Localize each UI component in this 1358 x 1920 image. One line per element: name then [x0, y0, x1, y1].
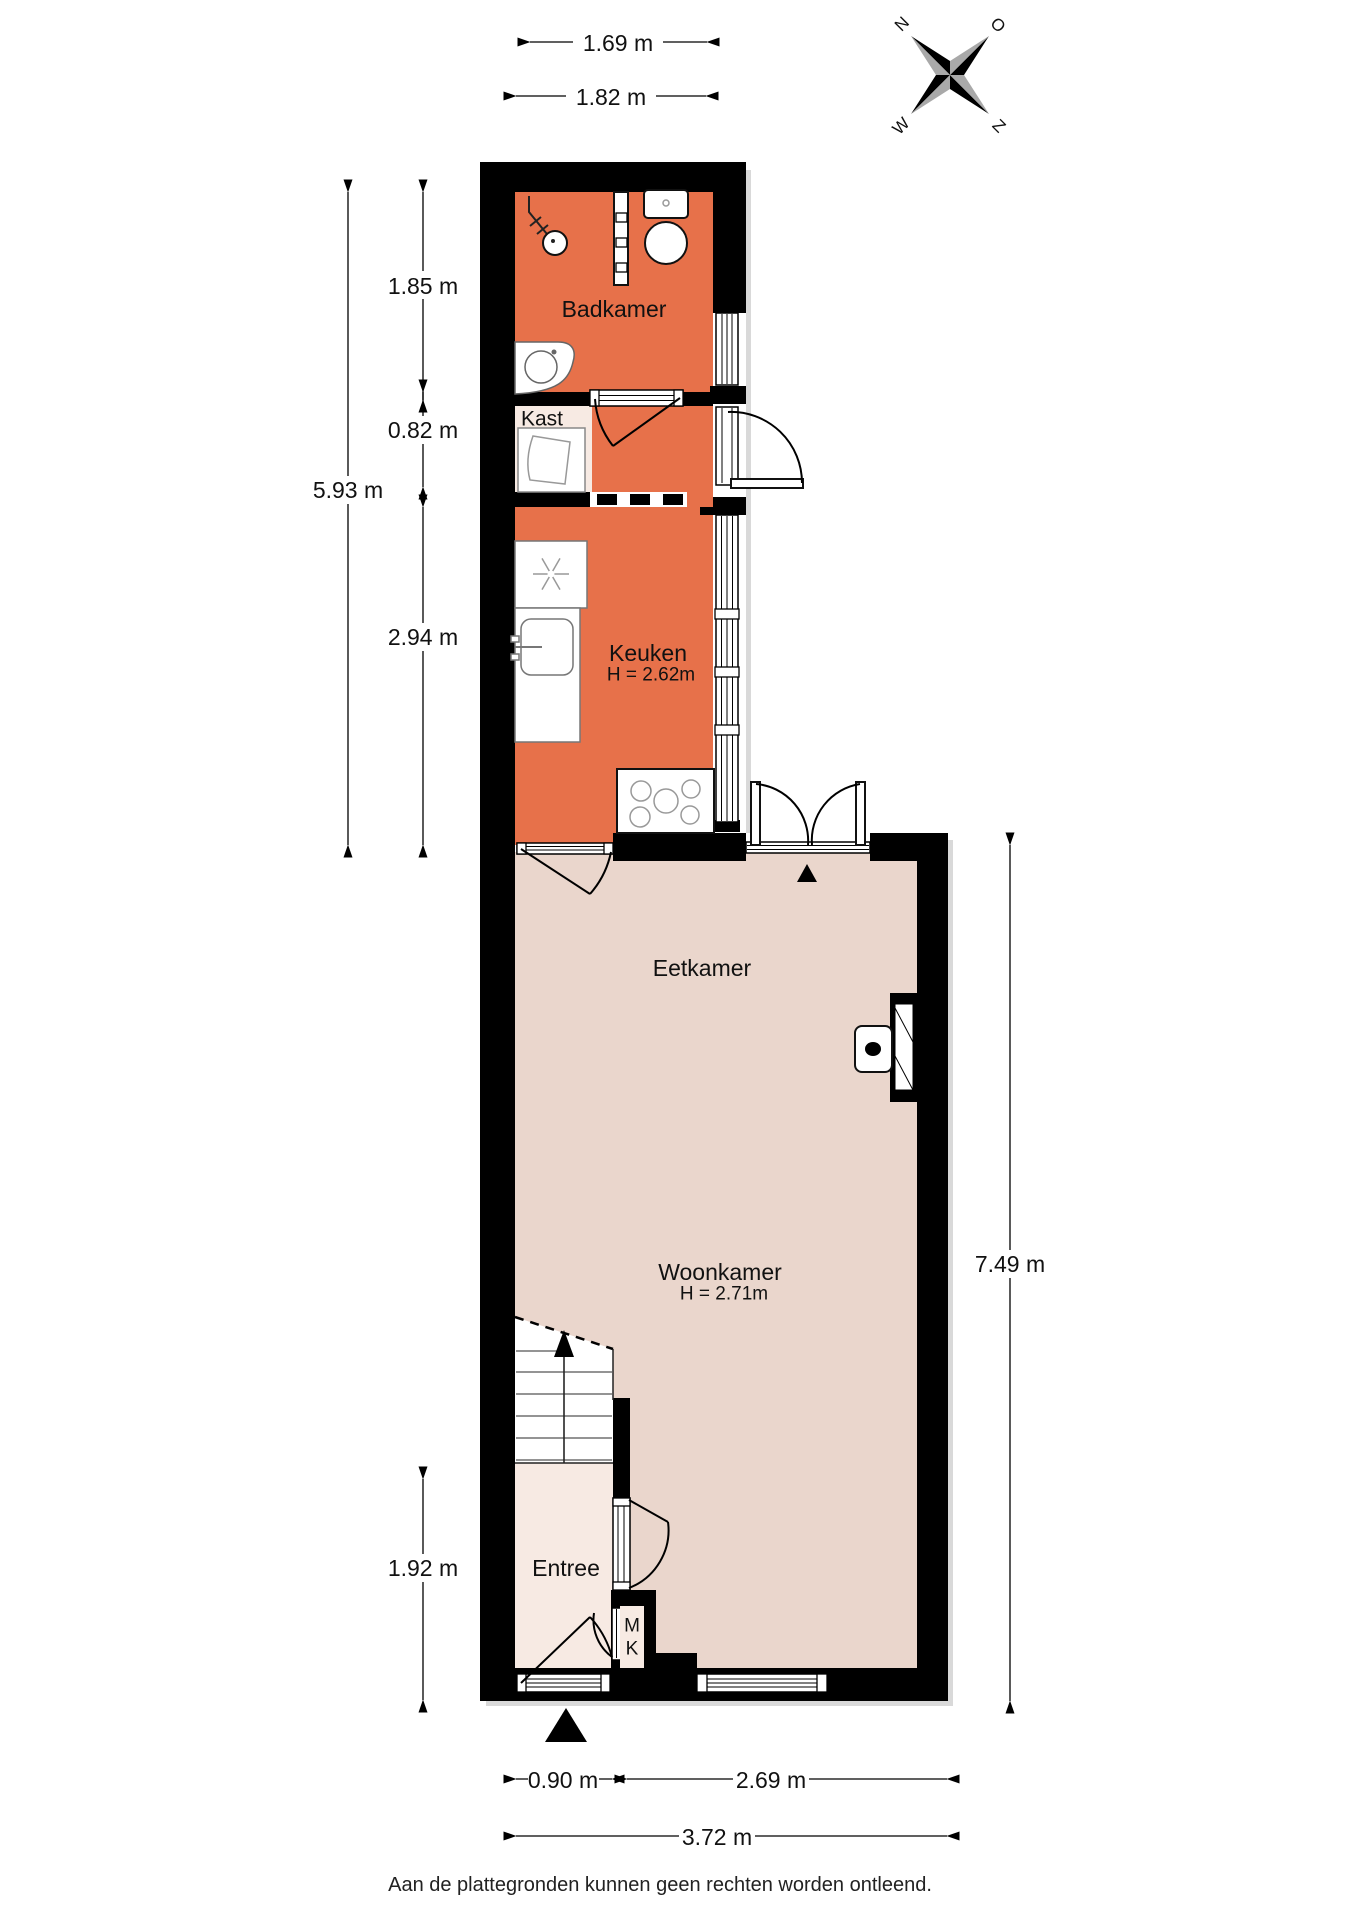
svg-text:1.92 m: 1.92 m	[388, 1555, 458, 1581]
dim-bottom-total: 3.72 m	[516, 1822, 947, 1850]
dim-left-badkamer: 1.85 m	[388, 192, 458, 400]
floorplan-svg: Badkamer Kast Keuken H = 2.62m Eetkamer …	[0, 0, 1358, 1920]
label-keuken-height: H = 2.62m	[607, 665, 695, 686]
keuken-window	[715, 515, 739, 822]
svg-text:0.90 m: 0.90 m	[528, 1767, 598, 1793]
label-woonkamer: Woonkamer	[658, 1259, 782, 1285]
label-badkamer: Badkamer	[562, 296, 667, 322]
compass-south-label: Z	[989, 116, 1010, 137]
floorplan-page: Badkamer Kast Keuken H = 2.62m Eetkamer …	[0, 0, 1358, 1920]
dim-top-overall: 1.82 m	[516, 82, 706, 110]
dim-left-entree: 1.92 m	[388, 1479, 458, 1700]
label-meterkast-m: M	[624, 1616, 640, 1637]
kitchen-appliance-icon	[515, 541, 587, 608]
radiator-icon	[614, 192, 628, 285]
kast-keuken-passage	[590, 492, 713, 507]
label-entree: Entree	[532, 1555, 600, 1581]
label-keuken: Keuken	[609, 640, 687, 666]
compass-rose: N O W Z	[889, 13, 1010, 138]
dim-right-living: 7.49 m	[975, 845, 1045, 1701]
svg-text:5.93 m: 5.93 m	[313, 477, 383, 503]
wardrobe-icon	[518, 428, 585, 492]
dim-bottom-entrance: 0.90 m	[516, 1765, 612, 1793]
disclaimer-text: Aan de plattegronden kunnen geen rechten…	[388, 1874, 932, 1896]
dim-bottom-living: 2.69 m	[627, 1765, 947, 1793]
label-woonkamer-height: H = 2.71m	[680, 1284, 768, 1305]
svg-text:2.69 m: 2.69 m	[736, 1767, 806, 1793]
compass-west-label: W	[889, 114, 914, 139]
compass-north-label: N	[891, 13, 913, 35]
dim-left-keuken: 2.94 m	[388, 507, 458, 845]
dim-top-inner: 1.69 m	[530, 28, 707, 56]
label-meterkast-k: K	[626, 1639, 639, 1660]
svg-text:2.94 m: 2.94 m	[388, 624, 458, 650]
hall-corridor-floor	[592, 406, 713, 507]
svg-text:7.49 m: 7.49 m	[975, 1251, 1045, 1277]
stove-icon	[617, 769, 714, 833]
svg-text:3.72 m: 3.72 m	[682, 1824, 752, 1850]
label-kast: Kast	[521, 408, 563, 431]
svg-text:1.69 m: 1.69 m	[583, 30, 653, 56]
back-door	[716, 407, 803, 488]
dim-left-total-upper: 5.93 m	[313, 192, 383, 845]
badkamer-window	[716, 313, 738, 385]
entrance-arrow	[545, 1708, 587, 1742]
svg-text:1.82 m: 1.82 m	[576, 84, 646, 110]
svg-text:1.85 m: 1.85 m	[388, 273, 458, 299]
compass-east-label: O	[987, 14, 1010, 37]
kitchen-sink-icon	[511, 608, 580, 742]
french-doors	[746, 782, 870, 853]
dim-left-kast: 0.82 m	[388, 392, 458, 487]
label-eetkamer: Eetkamer	[653, 955, 752, 981]
woonkamer-window	[697, 1674, 827, 1692]
svg-text:0.82 m: 0.82 m	[388, 417, 458, 443]
